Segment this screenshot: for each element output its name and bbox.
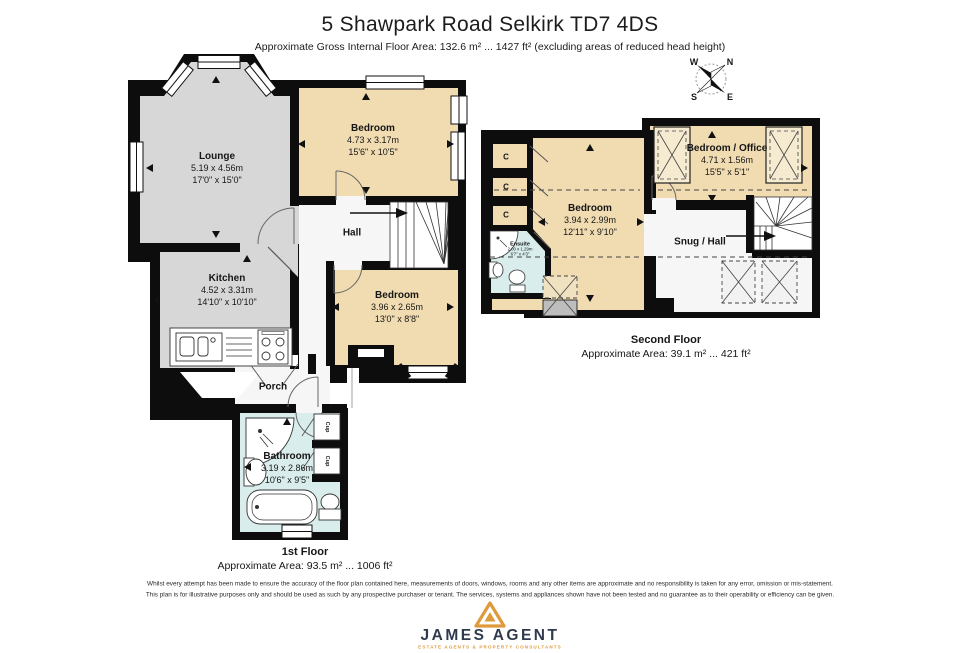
logo-tagline: ESTATE AGENTS & PROPERTY CONSULTANTS [418,645,562,650]
skylight-snug-left [722,261,755,303]
disclaimer-line-2: This plan is for illustrative purposes o… [146,592,834,599]
room-imperial: 12'11" x 9'10" [563,227,617,239]
disclaimer-line-1: Whilst every attempt has been made to en… [147,581,833,588]
page-subtitle: Approximate Gross Internal Floor Area: 1… [255,41,725,53]
first-floor-caption: 1st Floor [282,546,328,558]
room-label-hall: Hall [343,227,361,240]
room-label-bedroom-2f: Bedroom 3.94 x 2.99m 12'11" x 9'10" [563,202,617,238]
room-imperial: 6'7" x 4'3" [508,252,533,257]
closet-label-2: C [503,183,509,192]
skylight-bedroom-bottom [543,276,577,316]
room-label-kitchen: Kitchen 4.52 x 3.31m 14'10" x 10'10" [197,272,256,308]
room-label-lounge: Lounge 5.19 x 4.56m 17'0" x 15'0" [191,150,243,186]
compass-south-label: S [691,92,697,102]
room-name: Bedroom [347,122,399,135]
room-imperial: 10'6" x 9'5" [261,475,313,487]
room-metric: 4.73 x 3.17m [347,135,399,147]
room-imperial: 15'5" x 5'1" [687,167,768,179]
second-floor-plan [481,118,820,318]
room-metric: 3.96 x 2.65m [371,302,423,314]
room-metric: 4.71 x 1.56m [687,155,768,167]
skylight-snug-right [762,261,797,303]
ensuite-basin-icon [493,263,503,277]
room-label-snug-hall: Snug / Hall [674,236,726,249]
compass-north-label: N [727,57,734,67]
room-name: Snug / Hall [674,236,726,249]
room-imperial: 13'0" x 8'8" [371,314,423,326]
cupboard-label-2: Cup [324,456,330,467]
logo-triangle-icon [476,603,504,626]
room-name: Hall [343,227,361,240]
compass-icon [696,64,726,94]
room-name: Bedroom [563,202,617,215]
compass-east-label: E [727,92,733,102]
second-floor-caption: Second Floor [631,334,701,346]
first-floor-area-caption: Approximate Area: 93.5 m² ... 1006 ft² [217,560,392,572]
room-metric: 5.19 x 4.56m [191,163,243,175]
room-name: Bedroom / Office [687,142,768,155]
room-name: Lounge [191,150,243,163]
kitchen-counter [170,328,292,366]
closet-label-1: C [503,153,509,162]
second-floor-area-caption: Approximate Area: 39.1 m² ... 421 ft² [581,348,750,360]
ensuite-toilet-icon [509,270,525,284]
room-label-bathroom: Bathroom 3.19 x 2.86m 10'6" x 9'5" [261,450,313,486]
room-label-ensuite: Ensuite 2.00 x 1.29m 6'7" x 4'3" [508,241,533,256]
room-imperial: 15'6" x 10'5" [347,147,399,159]
closet-label-3: C [503,211,509,220]
room-label-bedroom2: Bedroom 3.96 x 2.65m 13'0" x 8'8" [371,289,423,325]
skylight-office-left [654,127,690,183]
closets [490,141,530,229]
skylight-office-right [766,127,802,183]
room-label-bedroom1: Bedroom 4.73 x 3.17m 15'6" x 10'5" [347,122,399,158]
room-metric: 4.52 x 3.31m [197,285,256,297]
room-metric: 3.19 x 2.86m [261,463,313,475]
compass-west-label: W [690,57,699,67]
room-name: Porch [259,381,287,394]
cupboard-label-1: Cup [324,422,330,433]
hob-icon [258,330,288,364]
room-metric: 3.94 x 2.99m [563,215,617,227]
room-name: Kitchen [197,272,256,285]
room-name: Bathroom [261,450,313,463]
room-label-bedroom-office: Bedroom / Office 4.71 x 1.56m 15'5" x 5'… [687,142,768,178]
room-imperial: 17'0" x 15'0" [191,175,243,187]
room-name: Bedroom [371,289,423,302]
logo-name: JAMES AGENT [421,627,560,645]
fireplace-icon [358,349,384,357]
toilet-icon [321,494,339,510]
floorplan-graphics [0,0,980,653]
room-imperial: 14'10" x 10'10" [197,297,256,309]
room-label-porch: Porch [259,381,287,394]
page-title: 5 Shawpark Road Selkirk TD7 4DS [322,13,659,37]
